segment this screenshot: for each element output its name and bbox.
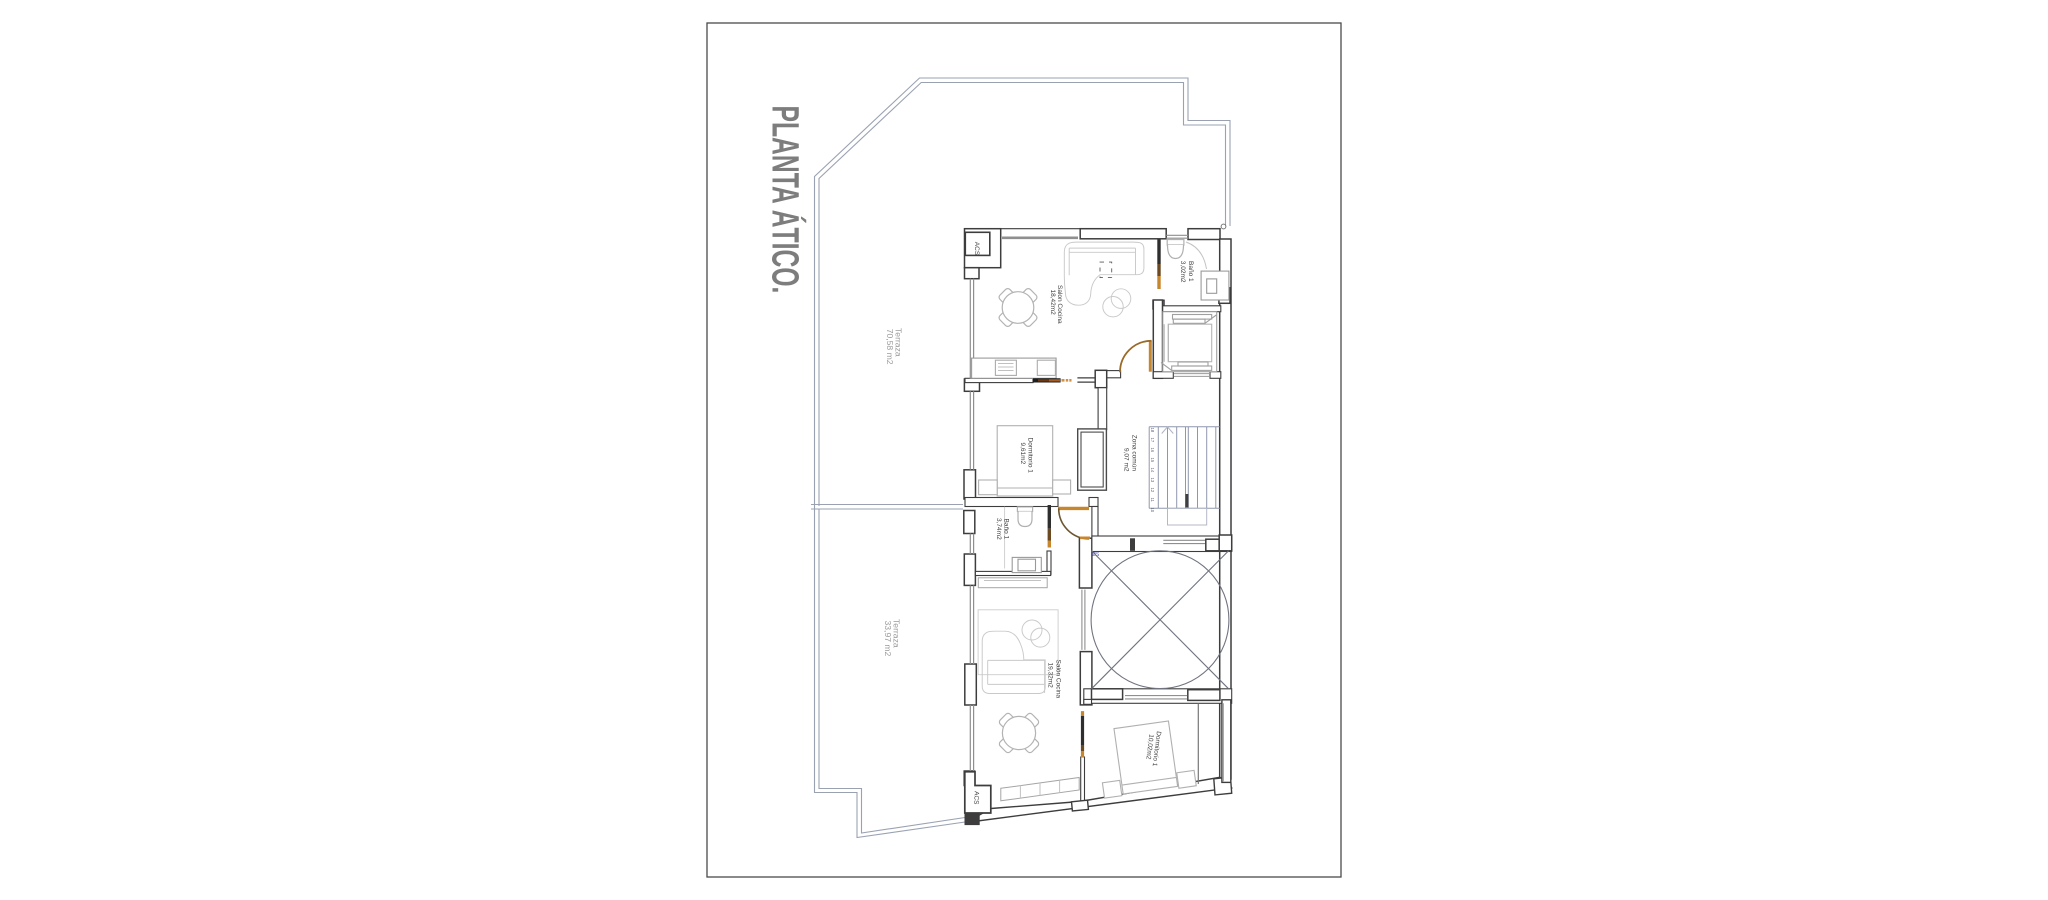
svg-text:10: 10: [1150, 508, 1155, 513]
svg-text:33,97 m2: 33,97 m2: [883, 621, 893, 657]
svg-text:3,74m2: 3,74m2: [995, 518, 1002, 540]
svg-text:16: 16: [1150, 448, 1155, 453]
svg-text:18,42m2: 18,42m2: [1049, 290, 1056, 316]
svg-text:ACS: ACS: [972, 791, 980, 805]
svg-text:12: 12: [1150, 488, 1155, 493]
svg-text:ØS: ØS: [1092, 552, 1100, 558]
svg-text:19,32m2: 19,32m2: [1047, 663, 1054, 689]
svg-text:3,02m2: 3,02m2: [1179, 261, 1186, 283]
svg-text:Baño 1: Baño 1: [1003, 519, 1010, 540]
svg-text:Baño 1: Baño 1: [1187, 261, 1194, 282]
svg-text:Salón Cocina: Salón Cocina: [1055, 660, 1062, 699]
svg-text:Salon Cocina: Salon Cocina: [1056, 285, 1063, 324]
svg-text:Dormitorio 1: Dormitorio 1: [1027, 438, 1034, 474]
svg-text:11: 11: [1150, 498, 1155, 503]
svg-text:Zona común: Zona común: [1130, 435, 1137, 472]
svg-text:9,07 m2: 9,07 m2: [1122, 448, 1129, 472]
svg-text:14: 14: [1150, 468, 1155, 473]
svg-text:ACS: ACS: [973, 242, 980, 256]
svg-text:18: 18: [1150, 428, 1155, 433]
svg-text:PLANTA ÁTICO.: PLANTA ÁTICO.: [764, 106, 807, 294]
svg-text:15: 15: [1150, 458, 1155, 463]
svg-text:17: 17: [1150, 438, 1155, 443]
svg-text:13: 13: [1150, 478, 1155, 483]
svg-text:9,61m2: 9,61m2: [1019, 443, 1026, 465]
svg-text:70,58 m2: 70,58 m2: [885, 329, 895, 365]
